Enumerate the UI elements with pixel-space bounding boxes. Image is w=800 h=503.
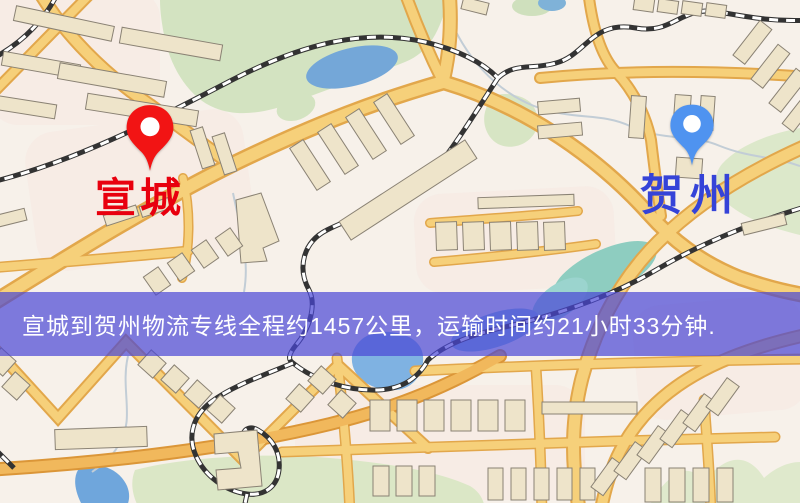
route-info-text: 宣城到贺州物流专线全程约1457公里，运输时间约21小时33分钟. xyxy=(22,307,716,341)
origin-pin-icon xyxy=(127,105,174,171)
origin-pin-hole xyxy=(140,117,159,136)
origin-label: 宣城 xyxy=(95,178,185,219)
map-graphic xyxy=(0,0,800,503)
destination-pin-icon xyxy=(670,105,713,166)
destination-pin-hole xyxy=(683,115,701,133)
origin-pin[interactable] xyxy=(124,101,176,175)
map-canvas: 宣城 贺州 宣城到贺州物流专线全程约1457公里，运输时间约21小时33分钟. xyxy=(0,0,800,503)
destination-label: 贺州 xyxy=(640,175,740,218)
destination-pin[interactable] xyxy=(668,101,716,169)
route-info-banner: 宣城到贺州物流专线全程约1457公里，运输时间约21小时33分钟. xyxy=(0,292,800,356)
